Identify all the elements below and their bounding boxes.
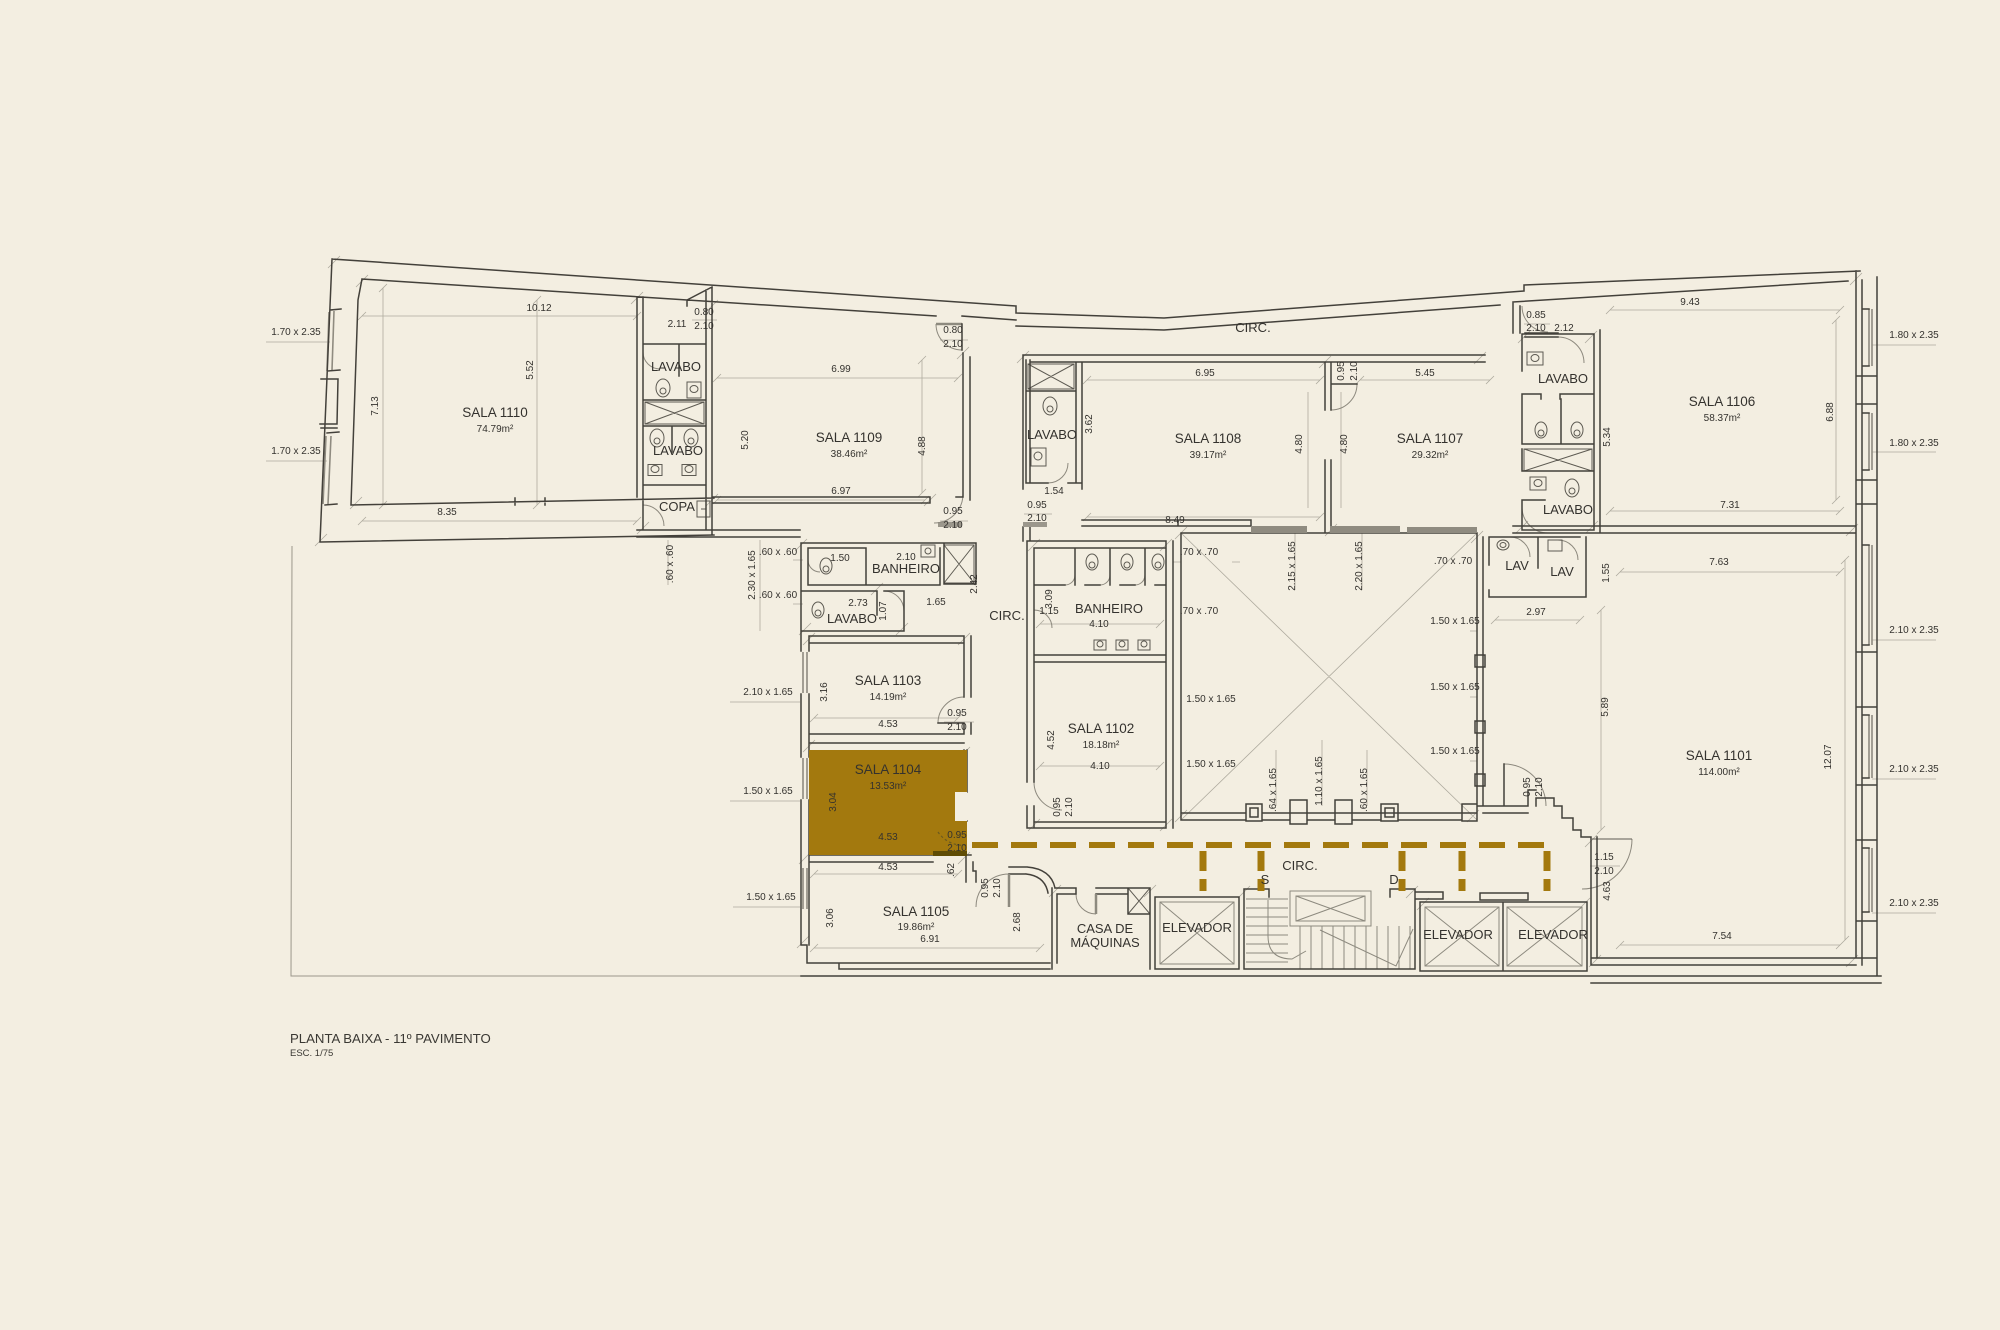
svg-text:2.73: 2.73 bbox=[848, 598, 868, 609]
svg-text:.70 x .70: .70 x .70 bbox=[1434, 556, 1473, 567]
svg-text:ESC. 1/75: ESC. 1/75 bbox=[290, 1048, 333, 1059]
svg-text:0.95: 0.95 bbox=[1336, 361, 1347, 381]
svg-text:4.80: 4.80 bbox=[1294, 434, 1305, 454]
svg-text:4.53: 4.53 bbox=[878, 719, 898, 730]
svg-text:.62: .62 bbox=[946, 863, 957, 877]
svg-text:4.80: 4.80 bbox=[1339, 434, 1350, 454]
svg-text:LAV: LAV bbox=[1505, 558, 1529, 573]
svg-text:1.65: 1.65 bbox=[926, 597, 946, 608]
svg-text:14.19m²: 14.19m² bbox=[870, 692, 907, 703]
svg-text:9.43: 9.43 bbox=[1680, 297, 1700, 308]
svg-text:1.50: 1.50 bbox=[830, 553, 850, 564]
svg-text:2.10: 2.10 bbox=[1534, 777, 1545, 797]
svg-text:19.86m²: 19.86m² bbox=[898, 922, 935, 933]
svg-text:SALA 1101: SALA 1101 bbox=[1686, 748, 1753, 763]
svg-text:ELEVADOR: ELEVADOR bbox=[1162, 920, 1232, 935]
svg-text:LAVABO: LAVABO bbox=[827, 611, 877, 626]
svg-text:3.16: 3.16 bbox=[819, 682, 830, 702]
svg-text:2.10: 2.10 bbox=[1064, 797, 1075, 817]
svg-text:1.80 x 2.35: 1.80 x 2.35 bbox=[1889, 438, 1939, 449]
svg-text:SALA 1104: SALA 1104 bbox=[855, 762, 922, 777]
svg-text:4.10: 4.10 bbox=[1089, 619, 1109, 630]
svg-text:4.88: 4.88 bbox=[917, 436, 928, 456]
svg-text:2.10: 2.10 bbox=[1027, 513, 1047, 524]
svg-text:PLANTA BAIXA - 11º PAVIMENTO: PLANTA BAIXA - 11º PAVIMENTO bbox=[290, 1031, 491, 1046]
svg-text:2.10: 2.10 bbox=[947, 722, 967, 733]
svg-text:1.50 x 1.65: 1.50 x 1.65 bbox=[1186, 759, 1236, 770]
svg-text:4.52: 4.52 bbox=[1046, 730, 1057, 750]
svg-text:1.10 x 1.65: 1.10 x 1.65 bbox=[1314, 756, 1325, 806]
svg-text:SALA 1107: SALA 1107 bbox=[1397, 431, 1464, 446]
svg-text:0.95: 0.95 bbox=[1052, 797, 1063, 817]
svg-text:2.10 x 2.35: 2.10 x 2.35 bbox=[1889, 898, 1939, 909]
svg-text:0.85: 0.85 bbox=[1526, 310, 1546, 321]
svg-text:10.12: 10.12 bbox=[526, 303, 551, 314]
svg-text:2.68: 2.68 bbox=[1012, 912, 1023, 932]
svg-text:0.95: 0.95 bbox=[980, 878, 991, 898]
svg-text:3.04: 3.04 bbox=[828, 792, 839, 812]
svg-text:13.53m²: 13.53m² bbox=[870, 781, 907, 792]
svg-text:LAVABO: LAVABO bbox=[1538, 371, 1588, 386]
svg-text:39.17m²: 39.17m² bbox=[1190, 450, 1227, 461]
svg-text:.70 x .70: .70 x .70 bbox=[1180, 606, 1219, 617]
svg-text:D: D bbox=[1389, 872, 1398, 887]
svg-text:.70 x .70: .70 x .70 bbox=[1180, 547, 1219, 558]
svg-text:4.63: 4.63 bbox=[1602, 881, 1613, 901]
svg-text:114.00m²: 114.00m² bbox=[1698, 767, 1740, 778]
svg-text:5.34: 5.34 bbox=[1602, 427, 1613, 447]
svg-text:SALA 1102: SALA 1102 bbox=[1068, 721, 1135, 736]
svg-text:5.52: 5.52 bbox=[525, 360, 536, 380]
svg-text:CIRC.: CIRC. bbox=[1235, 320, 1270, 335]
svg-text:2.10 x 2.35: 2.10 x 2.35 bbox=[1889, 625, 1939, 636]
svg-text:.60 x .60: .60 x .60 bbox=[759, 590, 798, 601]
svg-text:2.11: 2.11 bbox=[668, 319, 687, 330]
svg-text:7.31: 7.31 bbox=[1720, 500, 1740, 511]
svg-text:0.95: 0.95 bbox=[943, 506, 963, 517]
svg-text:6.97: 6.97 bbox=[831, 486, 851, 497]
svg-text:0.80: 0.80 bbox=[694, 307, 714, 318]
svg-text:CASA DE: CASA DE bbox=[1077, 921, 1134, 936]
svg-text:2.10: 2.10 bbox=[1594, 866, 1614, 877]
svg-text:.60 x .60: .60 x .60 bbox=[665, 544, 676, 583]
svg-text:2.20 x 1.65: 2.20 x 1.65 bbox=[1354, 541, 1365, 591]
svg-text:LAV: LAV bbox=[1550, 564, 1574, 579]
svg-text:0.95: 0.95 bbox=[1027, 500, 1047, 511]
svg-text:3.06: 3.06 bbox=[825, 908, 836, 928]
svg-text:MÁQUINAS: MÁQUINAS bbox=[1070, 935, 1140, 950]
svg-text:6.91: 6.91 bbox=[920, 934, 940, 945]
svg-text:2.10: 2.10 bbox=[943, 339, 963, 350]
svg-text:2.10: 2.10 bbox=[943, 520, 963, 531]
svg-text:2.10: 2.10 bbox=[896, 552, 916, 563]
svg-text:1.70 x 2.35: 1.70 x 2.35 bbox=[271, 446, 321, 457]
svg-text:29.32m²: 29.32m² bbox=[1412, 450, 1449, 461]
svg-text:1.50 x 1.65: 1.50 x 1.65 bbox=[1430, 682, 1480, 693]
svg-text:1.80 x 2.35: 1.80 x 2.35 bbox=[1889, 330, 1939, 341]
svg-text:LAVABO: LAVABO bbox=[653, 443, 703, 458]
svg-text:LAVABO: LAVABO bbox=[651, 359, 701, 374]
svg-text:SALA 1110: SALA 1110 bbox=[462, 405, 528, 420]
svg-text:4.10: 4.10 bbox=[1090, 761, 1110, 772]
svg-text:1.54: 1.54 bbox=[1044, 486, 1064, 497]
svg-text:CIRC.: CIRC. bbox=[989, 608, 1024, 623]
svg-text:2.10: 2.10 bbox=[1349, 361, 1360, 381]
svg-text:SALA 1106: SALA 1106 bbox=[1689, 394, 1756, 409]
svg-text:5.20: 5.20 bbox=[740, 430, 751, 450]
svg-text:18.18m²: 18.18m² bbox=[1083, 740, 1120, 751]
svg-text:12.07: 12.07 bbox=[1823, 744, 1834, 769]
svg-text:7.13: 7.13 bbox=[370, 396, 381, 416]
svg-text:ELEVADOR: ELEVADOR bbox=[1423, 927, 1493, 942]
svg-text:58.37m²: 58.37m² bbox=[1704, 413, 1741, 424]
svg-text:2.15 x 1.65: 2.15 x 1.65 bbox=[1287, 541, 1298, 591]
svg-text:8.49: 8.49 bbox=[1165, 515, 1185, 526]
svg-text:2.10: 2.10 bbox=[947, 843, 967, 854]
svg-text:SALA 1109: SALA 1109 bbox=[816, 430, 883, 445]
svg-text:1.15: 1.15 bbox=[1039, 606, 1059, 617]
svg-text:6.95: 6.95 bbox=[1195, 368, 1215, 379]
svg-text:1.50 x 1.65: 1.50 x 1.65 bbox=[1430, 746, 1480, 757]
svg-text:SALA 1103: SALA 1103 bbox=[855, 673, 922, 688]
svg-text:2.10: 2.10 bbox=[1526, 323, 1546, 334]
svg-text:SALA 1108: SALA 1108 bbox=[1175, 431, 1242, 446]
svg-text:1.50 x 1.65: 1.50 x 1.65 bbox=[1430, 616, 1480, 627]
svg-text:2.10: 2.10 bbox=[992, 878, 1003, 898]
svg-text:0.80: 0.80 bbox=[943, 325, 963, 336]
svg-text:S: S bbox=[1261, 872, 1270, 887]
svg-text:2.30 x 1.65: 2.30 x 1.65 bbox=[747, 550, 758, 600]
svg-text:2.97: 2.97 bbox=[1526, 607, 1546, 618]
svg-text:ELEVADOR: ELEVADOR bbox=[1518, 927, 1588, 942]
svg-text:LAVABO: LAVABO bbox=[1027, 427, 1077, 442]
svg-text:4.53: 4.53 bbox=[878, 862, 898, 873]
svg-text:1.50 x 1.65: 1.50 x 1.65 bbox=[1186, 694, 1236, 705]
svg-text:0.95: 0.95 bbox=[1522, 777, 1533, 797]
svg-text:1.07: 1.07 bbox=[878, 601, 889, 621]
svg-text:LAVABO: LAVABO bbox=[1543, 502, 1593, 517]
svg-text:7.54: 7.54 bbox=[1712, 931, 1732, 942]
svg-text:1.15: 1.15 bbox=[1594, 852, 1614, 863]
svg-text:COPA: COPA bbox=[659, 499, 695, 514]
svg-text:.64 x 1.65: .64 x 1.65 bbox=[1268, 768, 1279, 812]
svg-text:3.62: 3.62 bbox=[1084, 414, 1095, 434]
svg-text:1.50 x 1.65: 1.50 x 1.65 bbox=[746, 892, 796, 903]
svg-text:6.88: 6.88 bbox=[1825, 402, 1836, 422]
svg-text:5.89: 5.89 bbox=[1600, 697, 1611, 717]
svg-text:1.50 x 1.65: 1.50 x 1.65 bbox=[743, 786, 793, 797]
svg-text:CIRC.: CIRC. bbox=[1282, 858, 1317, 873]
svg-text:6.99: 6.99 bbox=[831, 364, 851, 375]
svg-text:1.55: 1.55 bbox=[1601, 563, 1612, 583]
svg-text:2.10: 2.10 bbox=[694, 321, 714, 332]
svg-text:7.63: 7.63 bbox=[1709, 557, 1729, 568]
svg-text:74.79m²: 74.79m² bbox=[477, 424, 514, 435]
svg-text:.60 x .60: .60 x .60 bbox=[759, 547, 798, 558]
svg-text:2.10 x 2.35: 2.10 x 2.35 bbox=[1889, 764, 1939, 775]
svg-text:BANHEIRO: BANHEIRO bbox=[872, 561, 940, 576]
svg-text:1.70 x 2.35: 1.70 x 2.35 bbox=[271, 327, 321, 338]
svg-text:4.53: 4.53 bbox=[878, 832, 898, 843]
svg-text:0.95: 0.95 bbox=[947, 830, 967, 841]
svg-text:SALA 1105: SALA 1105 bbox=[883, 904, 950, 919]
svg-text:5.45: 5.45 bbox=[1415, 368, 1435, 379]
svg-text:38.46m²: 38.46m² bbox=[831, 449, 868, 460]
svg-text:2.10 x 1.65: 2.10 x 1.65 bbox=[743, 687, 793, 698]
svg-text:0.95: 0.95 bbox=[947, 708, 967, 719]
svg-text:.60 x 1.65: .60 x 1.65 bbox=[1359, 768, 1370, 812]
svg-text:8.35: 8.35 bbox=[437, 507, 457, 518]
svg-text:2.42: 2.42 bbox=[969, 574, 980, 594]
svg-text:BANHEIRO: BANHEIRO bbox=[1075, 601, 1143, 616]
svg-text:2.12: 2.12 bbox=[1554, 323, 1574, 334]
